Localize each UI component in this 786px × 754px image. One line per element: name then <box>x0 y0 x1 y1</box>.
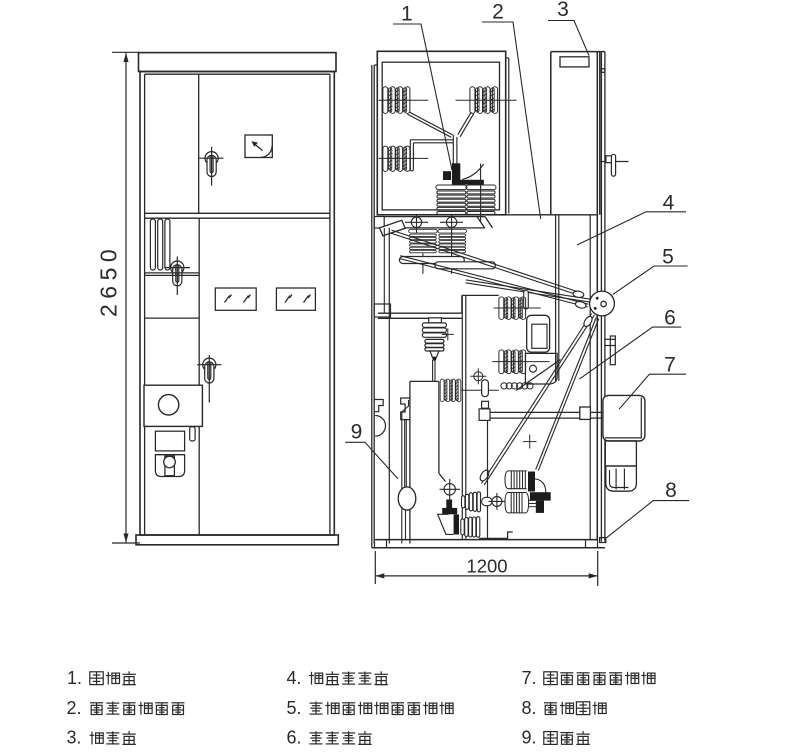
svg-text:1: 1 <box>401 3 413 26</box>
svg-text:2.: 2. <box>67 698 82 718</box>
svg-text:8.: 8. <box>522 698 537 718</box>
svg-text:4.: 4. <box>287 668 302 688</box>
svg-text:8: 8 <box>665 479 677 502</box>
svg-text:1.: 1. <box>67 668 82 688</box>
svg-text:2650: 2650 <box>96 244 122 317</box>
svg-text:3.: 3. <box>67 728 82 748</box>
svg-text:7: 7 <box>664 354 676 377</box>
svg-text:7.: 7. <box>522 668 537 688</box>
svg-text:3: 3 <box>557 0 569 21</box>
svg-text:9.: 9. <box>522 728 537 748</box>
svg-text:9: 9 <box>351 421 363 444</box>
svg-text:6.: 6. <box>287 728 302 748</box>
svg-text:4: 4 <box>663 192 675 215</box>
svg-text:6: 6 <box>664 307 676 330</box>
svg-text:5: 5 <box>662 246 674 269</box>
svg-text:1200: 1200 <box>466 556 507 577</box>
svg-text:2: 2 <box>492 0 504 23</box>
svg-text:5.: 5. <box>287 698 302 718</box>
